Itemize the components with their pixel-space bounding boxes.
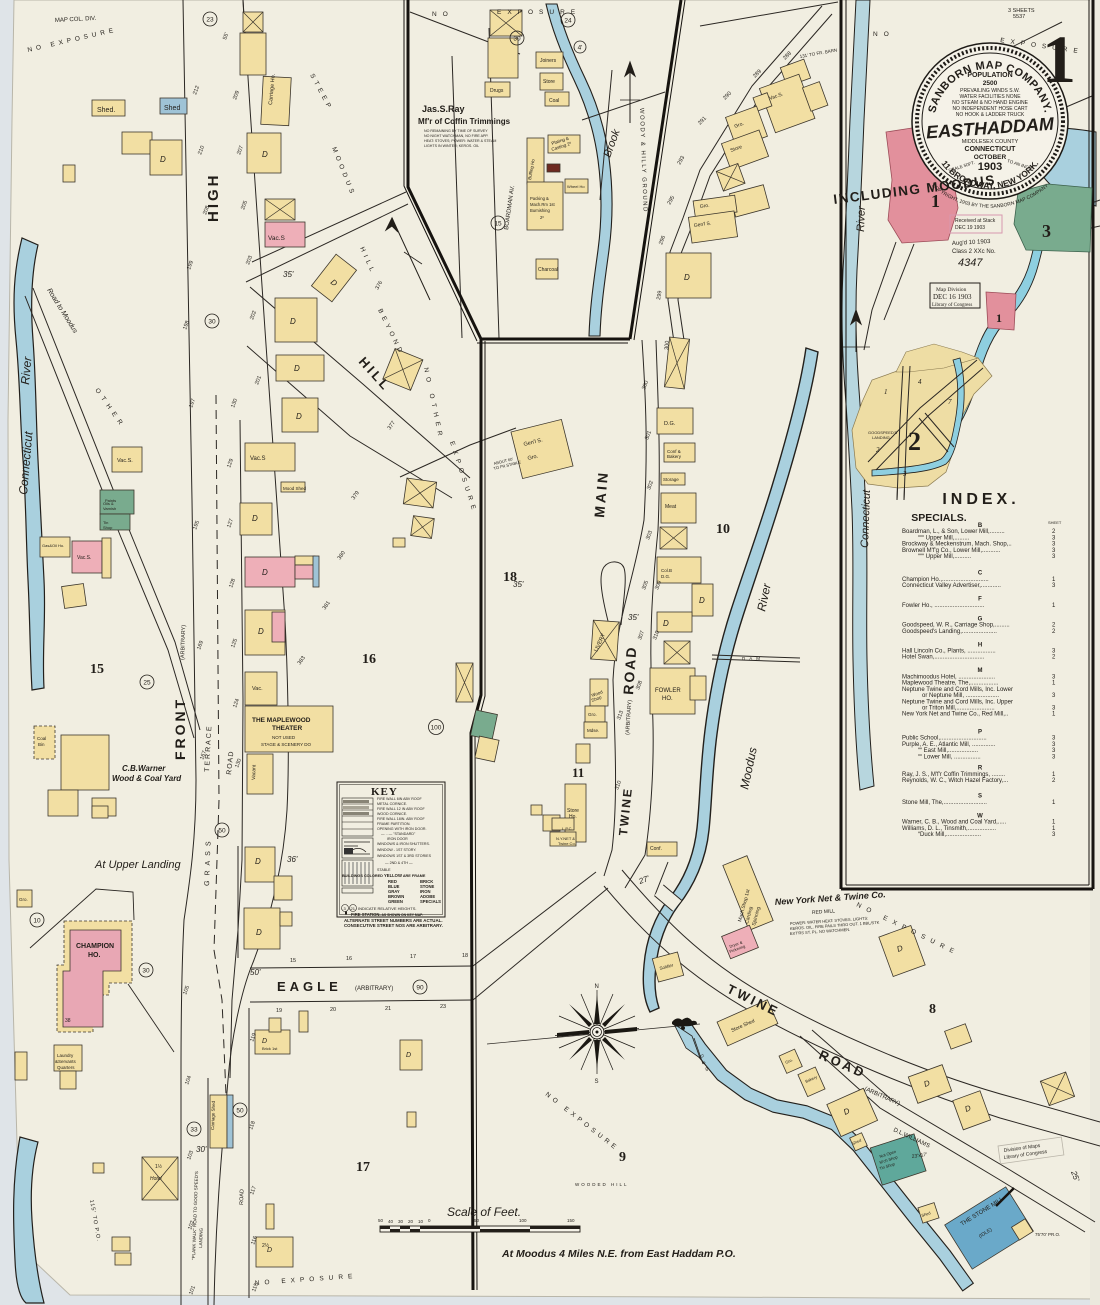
svg-text:1: 1 [996, 311, 1002, 325]
svg-text:3: 3 [1042, 221, 1051, 241]
svg-text:35': 35' [628, 613, 639, 622]
svg-text:NOT USED: NOT USED [272, 735, 296, 740]
svg-text:Champion Ho.,.................: Champion Ho.,...........................… [902, 577, 989, 583]
svg-text:Class 2 XXc No.: Class 2 XXc No. [952, 249, 996, 255]
svg-text:24: 24 [564, 18, 572, 25]
svg-text:FRAME PARTITION.: FRAME PARTITION. [377, 822, 410, 826]
svg-text:Ho.: Ho. [569, 814, 577, 820]
svg-text:1½: 1½ [155, 1163, 163, 1170]
svg-text:15: 15 [290, 958, 296, 964]
svg-text:Hall Lincoln Co., Plants, ....: Hall Lincoln Co., Plants, ..............… [902, 649, 996, 655]
svg-text:Bin: Bin [38, 742, 45, 747]
svg-text:Conf.: Conf. [650, 846, 662, 852]
svg-text:D.G.: D.G. [661, 574, 670, 579]
svg-text:30: 30 [398, 1219, 404, 1224]
svg-text:Joiners: Joiners [540, 58, 557, 64]
svg-text:C: C [978, 571, 983, 577]
svg-text:HO.: HO. [88, 952, 101, 959]
svg-text:S: S [595, 1079, 599, 1085]
svg-text:Williams, D. L., Tinsmith,....: Williams, D. L., Tinsmith,..............… [902, 826, 996, 832]
svg-text:23: 23 [440, 1004, 446, 1010]
svg-text:Ray, J. S., M'f'r Coffin Trimm: Ray, J. S., M'f'r Coffin Trimmings, ....… [902, 772, 1005, 778]
svg-text:150: 150 [567, 1218, 575, 1223]
svg-text:EAGLE: EAGLE [277, 979, 342, 994]
svg-text:Goodspeed's Landing,..........: Goodspeed's Landing,....................… [902, 629, 997, 635]
svg-text:Gro.: Gro. [588, 712, 597, 717]
svg-text:Hotel Swan,...................: Hotel Swan,.............................… [902, 655, 985, 661]
svg-text:Varnish: Varnish [103, 506, 116, 511]
svg-text:FRONT: FRONT [172, 697, 188, 760]
svg-text:Vac.S: Vac.S [268, 235, 286, 242]
svg-text:Neptune Twine and Cord Mills,: Neptune Twine and Cord Mills, Inc. Lower [902, 687, 1013, 693]
svg-text:33: 33 [190, 1127, 198, 1134]
svg-text:4347: 4347 [958, 257, 983, 269]
svg-text:D: D [406, 1052, 411, 1059]
svg-text:36': 36' [287, 855, 298, 864]
svg-text:2500: 2500 [983, 80, 998, 87]
svg-text:Connecticut: Connecticut [859, 489, 873, 548]
svg-text:D: D [255, 857, 261, 866]
svg-text:New York Net and Twine Co., Re: New York Net and Twine Co., Red Mill,.. [902, 712, 1009, 718]
svg-text:50: 50 [218, 828, 226, 835]
svg-text:75'70' PR.O.: 75'70' PR.O. [1035, 1232, 1060, 1237]
svg-text:“““ Upper Mill,.........: “““ Upper Mill,......... [918, 535, 970, 541]
svg-text:4: 4 [918, 378, 922, 386]
svg-text:30: 30 [142, 968, 150, 975]
svg-text:Jas.S.Ray: Jas.S.Ray [422, 104, 465, 114]
svg-text:4': 4' [578, 45, 583, 52]
svg-text:or Neptune Mill, .............: or Neptune Mill, .................... [922, 693, 999, 699]
svg-text:DEC 19 1903: DEC 19 1903 [955, 225, 985, 231]
svg-text:Wheel Ho: Wheel Ho [567, 184, 585, 189]
svg-text:5537: 5537 [1013, 14, 1025, 20]
svg-text:Quarters: Quarters [57, 1065, 75, 1070]
svg-text:NO REMAINING BY TIME OF SURVEY: NO REMAINING BY TIME OF SURVEY [424, 129, 488, 133]
svg-text:25: 25 [143, 680, 151, 687]
svg-text:B: B [978, 523, 983, 529]
svg-text:FIRE WALL 6IN ABV ROOF: FIRE WALL 6IN ABV ROOF [377, 797, 422, 801]
svg-text:D: D [663, 619, 669, 628]
svg-text:FIRE WALL 18IN. ABV ROOF: FIRE WALL 18IN. ABV ROOF [377, 817, 425, 821]
svg-text:River: River [855, 205, 868, 232]
svg-text:Wood & Coal Yard: Wood & Coal Yard [112, 774, 182, 783]
svg-text:or Triton Mill,...............: or Triton Mill,....................... [922, 706, 995, 712]
svg-text:STAGE & SCENERY DO: STAGE & SCENERY DO [261, 742, 312, 747]
svg-text:H: H [978, 642, 982, 648]
svg-text:Mf'r of Coffin Trimmings: Mf'r of Coffin Trimmings [418, 117, 511, 126]
svg-text:Mach.Rm 1st: Mach.Rm 1st [530, 202, 556, 207]
svg-text:30': 30' [196, 1145, 207, 1154]
svg-text:Hotel: Hotel [150, 1176, 163, 1182]
svg-text:W: W [977, 813, 983, 819]
svg-text:FIRE WALL 12 IN ABV ROOF: FIRE WALL 12 IN ABV ROOF [377, 807, 425, 811]
svg-text:16: 16 [362, 652, 376, 667]
svg-text:D: D [160, 155, 166, 164]
svg-text:19: 19 [276, 1008, 282, 1014]
svg-text:P: P [978, 729, 982, 735]
svg-text:D: D [294, 364, 300, 373]
svg-text:30: 30 [208, 319, 216, 326]
svg-text:WINDOW - 1ST STORY.: WINDOW - 1ST STORY. [377, 848, 416, 852]
svg-text:100: 100 [519, 1218, 527, 1223]
svg-text:Boardman, L., & Son, Lower Mil: Boardman, L., & Son, Lower Mill,........… [902, 529, 1005, 535]
svg-text:Connecticut Valley Advertiser,: Connecticut Valley Advertiser,..........… [902, 583, 1001, 589]
svg-text:Library of Congress: Library of Congress [932, 303, 972, 308]
svg-text:““ Lower Mill, ...............: ““ Lower Mill, ................ [918, 754, 981, 760]
svg-text:CHAMPION: CHAMPION [76, 943, 114, 950]
svg-text:Fowler Ho., ..................: Fowler Ho., ............................… [902, 603, 985, 609]
svg-text:8: 8 [929, 1002, 936, 1017]
svg-text:DEC 16 1903: DEC 16 1903 [933, 293, 972, 301]
svg-text:Mood Shed: Mood Shed [283, 486, 307, 491]
svg-text:OCTOBER: OCTOBER [974, 154, 1007, 161]
svg-text:18: 18 [462, 953, 468, 959]
svg-text:Mdse.: Mdse. [587, 728, 599, 733]
svg-text:&Servants: &Servants [55, 1059, 77, 1064]
svg-text:10: 10 [33, 918, 41, 925]
svg-text:35': 35' [513, 580, 524, 589]
svg-text:R: R [978, 766, 983, 772]
svg-text:D: D [684, 273, 690, 282]
svg-text:2: 2 [876, 446, 880, 454]
svg-text:15: 15 [90, 662, 104, 677]
svg-text:METAL CORNICE.: METAL CORNICE. [377, 802, 407, 806]
svg-text:MIDDLESEX COUNTY: MIDDLESEX COUNTY [962, 139, 1019, 145]
svg-text:21: 21 [385, 1006, 391, 1012]
svg-text:2½: 2½ [262, 1242, 270, 1249]
svg-text:D: D [290, 317, 296, 326]
svg-text:Brick 1st: Brick 1st [262, 1046, 278, 1051]
svg-text:D: D [262, 150, 268, 159]
svg-text:10: 10 [418, 1219, 424, 1224]
svg-text:NO: NO [873, 31, 895, 38]
svg-text:LANDING: LANDING [198, 1227, 204, 1248]
svg-text:Shop: Shop [103, 525, 113, 530]
svg-text:(ARBITRARY): (ARBITRARY) [180, 625, 187, 660]
svg-text:“““ Upper Mill,..........: “““ Upper Mill,.......... [918, 554, 971, 560]
svg-text:2: 2 [908, 427, 921, 456]
svg-text:D.G.: D.G. [664, 421, 676, 427]
svg-text:17: 17 [410, 954, 416, 960]
svg-text:WOODED HILL: WOODED HILL [575, 1182, 629, 1187]
svg-text:EXPOSURE: EXPOSURE [497, 9, 581, 16]
svg-text:D: D [256, 928, 262, 937]
svg-text:Bakery: Bakery [667, 454, 682, 459]
svg-text:F: F [978, 597, 982, 603]
svg-text:30: 30 [513, 36, 521, 43]
svg-text:Brockway & Meckenstrum, Mach.: Brockway & Meckenstrum, Mach. Shop,.. [902, 542, 1012, 548]
svg-text:Vacant: Vacant [251, 764, 258, 780]
svg-text:S: S [978, 794, 982, 800]
svg-text:Purple, A. E., Atlantic Mill,: Purple, A. E., Atlantic Mill, ..........… [902, 742, 996, 748]
svg-text:Coal: Coal [549, 98, 559, 104]
svg-text:90: 90 [416, 985, 424, 992]
svg-text:50: 50 [236, 1108, 244, 1115]
svg-text:Stone Mill, The,..............: Stone Mill, The,........................… [902, 800, 987, 806]
svg-text:G: G [978, 616, 983, 622]
svg-text:M: M [978, 668, 983, 674]
svg-text:50': 50' [250, 968, 261, 977]
svg-text:Public School,................: Public School,..........................… [902, 736, 987, 742]
svg-text:NO NIGHT WATCHMAN, NO FIRE APP: NO NIGHT WATCHMAN, NO FIRE APP. [424, 134, 488, 138]
svg-text:HO.: HO. [662, 696, 673, 702]
svg-text:1: 1 [1042, 21, 1076, 97]
svg-text:Vac.: Vac. [252, 686, 263, 692]
svg-text:CONNECTICUT: CONNECTICUT [965, 146, 1017, 153]
svg-text:1: 1 [884, 388, 888, 396]
svg-text:35': 35' [283, 270, 294, 279]
svg-text:D: D [252, 514, 258, 523]
svg-text:Machimoodus Hotel, ...........: Machimoodus Hotel, .....................… [902, 674, 995, 680]
svg-text:2º: 2º [540, 215, 544, 220]
svg-text:L.P.C.: L.P.C. [562, 826, 573, 831]
svg-text:HEAT: STOVES; POWER: WATER &: HEAT: STOVES; POWER: WATER & STEAM [424, 139, 496, 143]
svg-text:9: 9 [619, 1150, 626, 1165]
svg-text:WINDOWS 1ST & 3RD STORIES: WINDOWS 1ST & 3RD STORIES [377, 854, 432, 858]
svg-text:50: 50 [378, 1218, 384, 1223]
svg-text:WINDOWS & IRON SHUTTERS.: WINDOWS & IRON SHUTTERS. [377, 842, 430, 846]
svg-text:D: D [262, 568, 268, 577]
svg-text:16: 16 [346, 956, 352, 962]
svg-text:IRON DOOR: IRON DOOR [387, 837, 408, 841]
svg-text:38: 38 [65, 1018, 71, 1024]
svg-text:Gro.: Gro. [19, 897, 28, 902]
svg-text:Vac.S: Vac.S [250, 456, 266, 462]
svg-text:— .. — "STANDARD": — .. — "STANDARD" [381, 832, 416, 836]
svg-text:Carriage Shed: Carriage Shed [210, 1100, 216, 1130]
svg-text:100: 100 [431, 725, 442, 732]
svg-text:300: 300 [664, 340, 671, 350]
svg-text:1903: 1903 [978, 161, 1002, 173]
svg-text:““ East Mill,.................: ““ East Mill,.................. [918, 748, 978, 754]
svg-text:THEATER: THEATER [272, 725, 303, 732]
svg-text:LIGHTS IN WINTER; KEROS. OIL: LIGHTS IN WINTER; KEROS. OIL [424, 144, 479, 148]
svg-text:POPULATION: POPULATION [967, 72, 1012, 79]
svg-text:WOOD CORNICE.: WOOD CORNICE. [377, 812, 407, 816]
svg-text:(ARBITRARY): (ARBITRARY) [355, 986, 393, 992]
svg-text:Scale of Feet.: Scale of Feet. [447, 1205, 521, 1219]
svg-text:INDEX.: INDEX. [942, 491, 1019, 508]
svg-text:INDICATE RELATIVE HEIGHTS.: INDICATE RELATIVE HEIGHTS. [358, 906, 417, 911]
svg-text:15: 15 [494, 221, 502, 228]
svg-text:7: 7 [948, 398, 952, 406]
svg-text:Gas&Oil Ho.: Gas&Oil Ho. [42, 543, 64, 548]
svg-text:21: 21 [351, 906, 356, 911]
svg-text:GREEN: GREEN [388, 899, 403, 904]
svg-text:River: River [18, 355, 34, 385]
svg-text:Maplewood Theatre, The,.......: Maplewood Theatre, The,................. [902, 681, 999, 687]
svg-text:Goodspeed, W. R., Carriage Sho: Goodspeed, W. R., Carriage Shop,........… [902, 623, 1010, 629]
svg-text:Vac.S.: Vac.S. [77, 555, 91, 561]
svg-text:DAM: DAM [742, 656, 764, 661]
svg-text:LANDING: LANDING [872, 435, 890, 440]
svg-text:11: 11 [572, 765, 584, 780]
svg-text:Burnishing: Burnishing [530, 208, 550, 213]
svg-text:10: 10 [716, 522, 730, 537]
svg-text:ROAD: ROAD [239, 1189, 246, 1205]
svg-text:Twine Co.: Twine Co. [558, 841, 576, 846]
svg-text:40: 40 [388, 1219, 394, 1224]
svg-text:C.B.Warner: C.B.Warner [122, 764, 166, 773]
svg-text:20: 20 [330, 1007, 336, 1013]
svg-text:Meat: Meat [665, 504, 677, 510]
svg-text:FOWLER: FOWLER [655, 688, 681, 694]
svg-text:— 2ND & 4TH —: — 2ND & 4TH — [385, 861, 413, 865]
svg-text:Neptune Twine and Cord Mills,: Neptune Twine and Cord Mills, Inc. Upper [902, 699, 1013, 705]
svg-text:Received at Stack: Received at Stack [955, 218, 996, 224]
svg-text:20: 20 [408, 1219, 414, 1224]
svg-text:SPECIALS.: SPECIALS. [911, 512, 967, 524]
svg-text:At Upper Landing: At Upper Landing [94, 859, 181, 871]
svg-text:At Moodus 4 Miles N.E. from Ea: At Moodus 4 Miles N.E. from East Haddam … [501, 1248, 736, 1260]
svg-text:Vac.S.: Vac.S. [117, 458, 133, 464]
svg-text:BUILDINGS COLORED YELLOW ARE: BUILDINGS COLORED YELLOW ARE FRAME [342, 873, 426, 878]
svg-text:D: D [699, 596, 705, 605]
svg-text:SHEET: SHEET [1048, 520, 1062, 525]
svg-text:Charcoal: Charcoal [538, 267, 558, 273]
svg-text:Packing &: Packing & [530, 196, 549, 201]
svg-text:THE MAPLEWOOD: THE MAPLEWOOD [252, 717, 311, 724]
svg-text:FIRE STATION. AS SHOWN ON KEY: FIRE STATION. AS SHOWN ON KEY MAP. [351, 912, 423, 917]
svg-text:STABLE: STABLE [377, 868, 391, 872]
svg-text:OPENING WITH IRON DOOR.: OPENING WITH IRON DOOR. [377, 827, 427, 831]
svg-text:Reynolds, W. C., Witch Hazel F: Reynolds, W. C., Witch Hazel Factory,... [902, 778, 1009, 784]
svg-text:Drugs: Drugs [490, 88, 504, 94]
svg-text:D: D [258, 627, 264, 636]
svg-text:17: 17 [356, 1160, 370, 1175]
svg-text:Warner, C. B., Wood and Coal Y: Warner, C. B., Wood and Coal Yard,..... [902, 820, 1006, 826]
svg-text:Brownell M'f'g Co., Lower Mill: Brownell M'f'g Co., Lower Mill,.........… [902, 548, 1001, 554]
svg-text:Shed.: Shed. [97, 107, 115, 114]
svg-text:N: N [595, 984, 599, 990]
svg-text:Storage: Storage [663, 477, 679, 482]
svg-text:“Duck Mill,...................: “Duck Mill,..................... [918, 832, 981, 838]
svg-text:50: 50 [474, 1218, 480, 1223]
svg-text:D: D [262, 1038, 267, 1045]
svg-text:D: D [296, 412, 302, 421]
svg-text:Store: Store [543, 79, 555, 85]
svg-text:CONSECUTIVE STREET NOS ARE ARB: CONSECUTIVE STREET NOS ARE ARBITRARY. [344, 923, 443, 928]
svg-text:Col.B: Col.B [661, 568, 672, 573]
svg-text:3: 3 [902, 470, 907, 478]
svg-text:Coal: Coal [37, 736, 46, 741]
svg-text:23: 23 [206, 17, 214, 24]
svg-text:Laundry: Laundry [57, 1053, 74, 1058]
svg-text:NO: NO [432, 11, 454, 18]
svg-text:Shed: Shed [164, 105, 180, 112]
svg-text:SPECIALS: SPECIALS [420, 899, 441, 904]
